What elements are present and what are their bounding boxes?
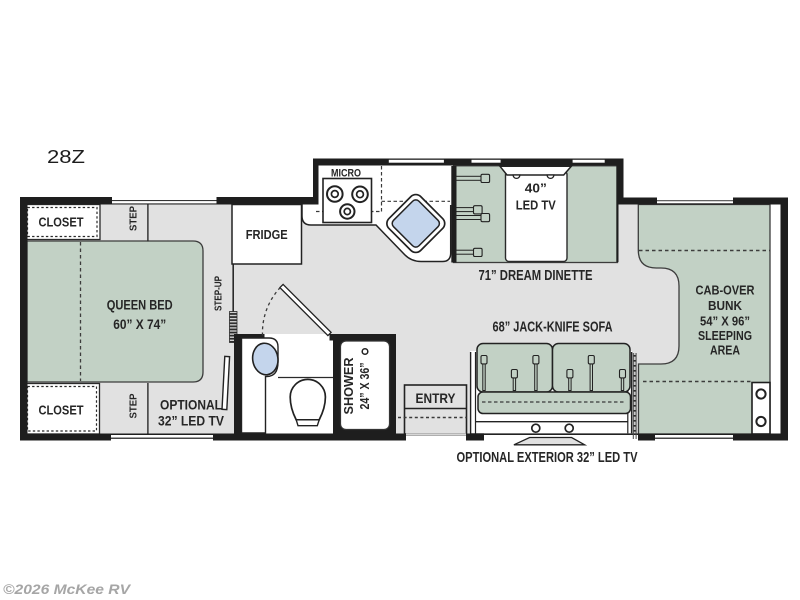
svg-text:CLOSET: CLOSET bbox=[39, 404, 84, 418]
svg-text:AREA: AREA bbox=[710, 343, 740, 358]
svg-text:32” LED TV: 32” LED TV bbox=[158, 414, 224, 429]
svg-text:40”: 40” bbox=[525, 181, 547, 196]
svg-text:MICRO: MICRO bbox=[331, 168, 361, 180]
svg-text:SLEEPING: SLEEPING bbox=[698, 328, 752, 343]
svg-text:CAB-OVER: CAB-OVER bbox=[696, 283, 755, 298]
svg-text:STEP-UP: STEP-UP bbox=[214, 276, 225, 311]
svg-text:CLOSET: CLOSET bbox=[39, 216, 84, 230]
svg-text:BUNK: BUNK bbox=[708, 298, 742, 313]
svg-text:SHOWER: SHOWER bbox=[341, 357, 356, 415]
svg-text:FRIDGE: FRIDGE bbox=[246, 227, 288, 242]
svg-text:STEP: STEP bbox=[128, 394, 140, 419]
svg-text:LED TV: LED TV bbox=[516, 198, 556, 213]
svg-text:QUEEN BED: QUEEN BED bbox=[107, 297, 173, 313]
svg-text:68” JACK-KNIFE SOFA: 68” JACK-KNIFE SOFA bbox=[493, 319, 613, 336]
svg-text:ENTRY: ENTRY bbox=[416, 390, 457, 406]
svg-text:OPTIONAL EXTERIOR 32” LED TV: OPTIONAL EXTERIOR 32” LED TV bbox=[457, 449, 638, 466]
svg-text:28Z: 28Z bbox=[47, 147, 85, 167]
svg-text:©2026 McKee RV: ©2026 McKee RV bbox=[3, 581, 132, 597]
svg-text:71” DREAM DINETTE: 71” DREAM DINETTE bbox=[479, 267, 593, 284]
svg-text:OPTIONAL: OPTIONAL bbox=[160, 398, 222, 413]
svg-text:54” X 96”: 54” X 96” bbox=[700, 314, 750, 329]
svg-text:STEP: STEP bbox=[128, 206, 140, 231]
svg-text:60” X 74”: 60” X 74” bbox=[113, 316, 166, 332]
svg-text:24” X 36”: 24” X 36” bbox=[357, 363, 372, 410]
